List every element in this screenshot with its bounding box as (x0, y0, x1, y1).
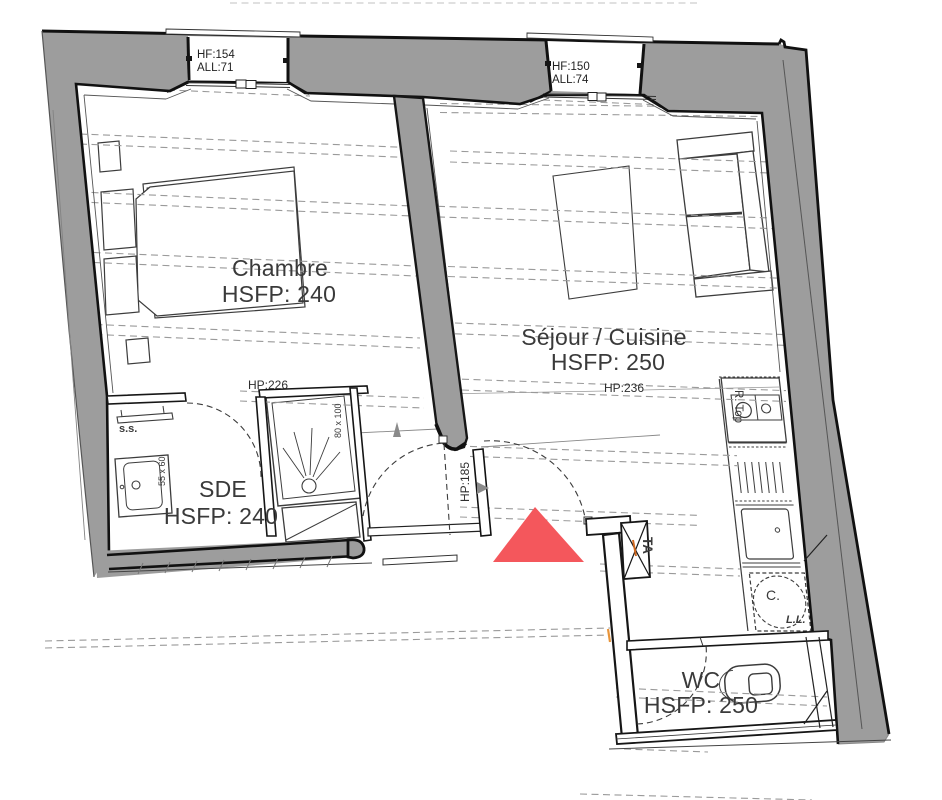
svg-text:L.L.: L.L. (786, 614, 806, 626)
svg-text:R. Top: R. Top (732, 390, 744, 423)
svg-text:WC: WC (682, 667, 721, 693)
svg-text:HSFP: 240: HSFP: 240 (164, 503, 278, 529)
svg-text:HF:150: HF:150 (552, 61, 590, 73)
svg-text:HSFP: 250: HSFP: 250 (644, 692, 758, 718)
svg-text:HF:154: HF:154 (197, 49, 235, 61)
svg-text:HSFP: 240: HSFP: 240 (222, 281, 336, 307)
svg-text:Séjour / Cuisine: Séjour / Cuisine (521, 324, 687, 350)
svg-text:ALL:74: ALL:74 (552, 74, 589, 86)
svg-text:SDE: SDE (199, 476, 247, 502)
svg-text:C.: C. (766, 587, 780, 603)
svg-text:Chambre: Chambre (232, 255, 328, 281)
svg-text:ALL:71: ALL:71 (197, 62, 233, 74)
svg-text:HSFP: 250: HSFP: 250 (551, 349, 665, 375)
svg-text:80 x 100: 80 x 100 (333, 403, 343, 438)
svg-text:55 x 60: 55 x 60 (157, 456, 167, 486)
svg-text:s.s.: s.s. (119, 423, 137, 435)
svg-text:TA: TA (640, 537, 655, 554)
svg-text:HP:236: HP:236 (604, 381, 644, 395)
svg-text:HP:185: HP:185 (458, 462, 472, 502)
svg-text:HP:226: HP:226 (248, 378, 288, 392)
